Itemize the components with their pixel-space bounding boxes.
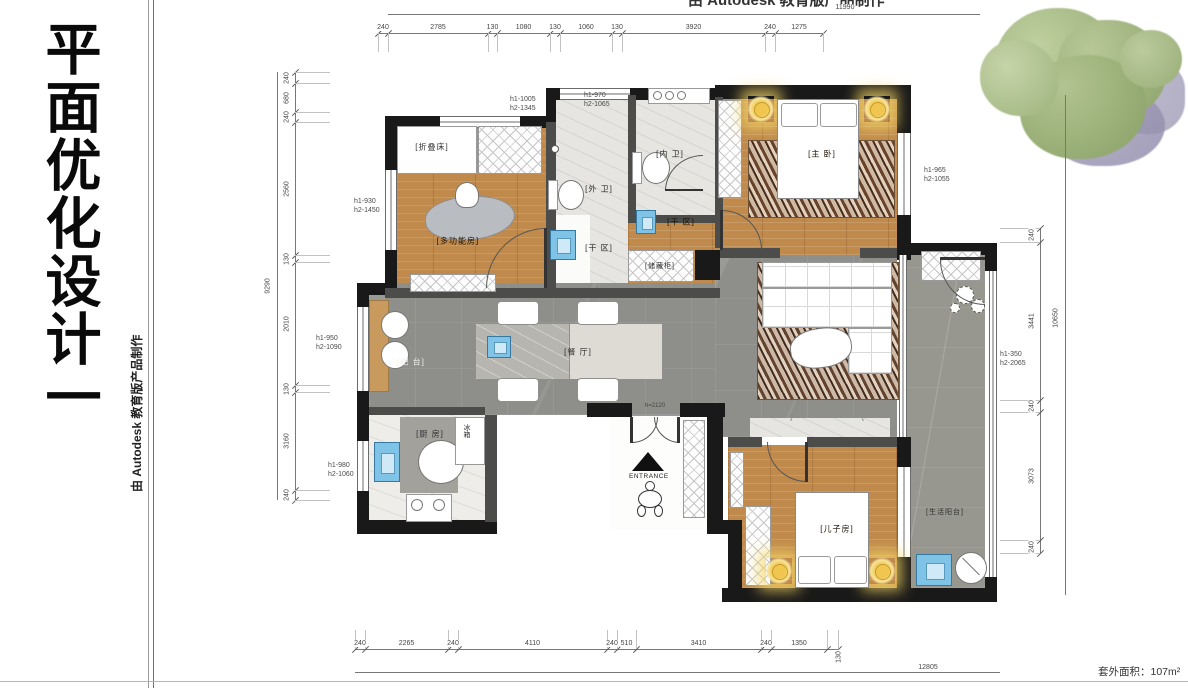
dim-extension	[497, 33, 498, 52]
window-kitchen-left	[357, 441, 369, 491]
dim-label: 130	[548, 24, 562, 31]
island-sink	[487, 336, 511, 358]
dim-chain-line	[1040, 228, 1041, 553]
desk-chair	[455, 182, 479, 208]
dim-extension	[838, 630, 839, 649]
wall	[385, 116, 397, 170]
dim-label: 240	[376, 24, 390, 31]
window-label: h1-1005h2-1345	[510, 96, 536, 114]
dim-extension	[295, 262, 330, 263]
fridge	[455, 417, 485, 465]
window-label: h1-980h2-1060	[328, 462, 354, 480]
dim-label: 2265	[398, 640, 416, 647]
door-leaf	[544, 228, 547, 288]
dim-label: 240	[446, 640, 460, 647]
dim-label: 130	[284, 252, 291, 266]
door-leaf	[805, 442, 808, 482]
dim-extension	[765, 33, 766, 52]
dim-label: 240	[763, 24, 777, 31]
door-leaf	[720, 210, 723, 250]
sliding-door-balcony	[899, 255, 907, 437]
window-bar-left	[357, 307, 369, 391]
kitchen-sink	[374, 442, 400, 482]
dim-overall-bottom-line	[355, 672, 1000, 673]
wall	[707, 520, 742, 534]
dim-extension	[295, 112, 330, 113]
dim-label: 240	[759, 640, 773, 647]
room-label-master: [主 卧]	[808, 149, 836, 160]
dim-label: 680	[284, 91, 291, 105]
dim-extension	[488, 33, 489, 52]
pillow	[834, 556, 867, 584]
dim-label: 3920	[685, 24, 703, 31]
wall	[546, 288, 720, 298]
dim-label: 240	[353, 640, 367, 647]
wall	[897, 85, 911, 133]
dim-overall-left: 9290	[265, 277, 272, 295]
entrance-threshold	[632, 414, 680, 416]
wall	[357, 283, 369, 307]
door-leaf	[940, 257, 985, 260]
frame-line-vertical	[148, 0, 149, 688]
dim-label: 3073	[1029, 467, 1036, 485]
dim-extension	[388, 33, 389, 52]
wall	[897, 437, 911, 467]
pillow	[781, 103, 818, 127]
plant-icon	[950, 303, 960, 313]
dim-extension	[295, 83, 330, 84]
dim-extension	[295, 500, 330, 501]
window-balcony-right	[989, 271, 997, 577]
entrance-label: ENTRANCE	[629, 473, 669, 480]
dim-label: 130	[486, 24, 500, 31]
room-label-outer-bath: [外 卫]	[585, 184, 613, 195]
dim-extension	[295, 72, 330, 73]
room-label-folding-bed: [折叠床]	[415, 142, 448, 153]
dim-label: 240	[605, 640, 619, 647]
window-label: h1-970h2-1065	[584, 92, 610, 110]
cabinet-dining-top	[410, 274, 496, 292]
shower-head-icon	[551, 145, 559, 153]
dim-label: 3410	[690, 640, 708, 647]
room-label-dining: [餐 厅]	[564, 347, 592, 358]
window-kids-right	[897, 467, 911, 557]
washing-machine	[916, 554, 952, 586]
wall	[728, 534, 742, 592]
frame-line-vertical-2	[153, 0, 154, 688]
room-label-balcony: [生活阳台]	[926, 507, 964, 517]
wall	[485, 415, 497, 522]
dim-label: 510	[620, 640, 634, 647]
dim-label: 240	[1029, 540, 1036, 554]
burner	[411, 499, 423, 511]
wall	[985, 243, 997, 271]
dim-overall-left-line	[277, 72, 278, 500]
autodesk-credit-side: 由 Autodesk 教育版产品制作	[128, 247, 145, 492]
dim-label: 1275	[790, 24, 808, 31]
dim-extension	[775, 33, 776, 52]
wall	[357, 391, 369, 441]
door-leaf	[630, 417, 633, 443]
sofa-chaise	[848, 328, 892, 374]
wall	[807, 437, 897, 447]
entrance-arrow-icon	[632, 452, 664, 471]
dim-chain-line	[295, 72, 296, 500]
dim-overall-bottom: 12805	[917, 664, 938, 671]
bedside-lamp-icon	[864, 96, 890, 122]
dim-label: 240	[284, 488, 291, 502]
wall	[680, 403, 725, 417]
dim-extension	[612, 33, 613, 52]
closet-corridor	[730, 452, 744, 508]
wall	[897, 557, 911, 602]
dim-label: 2560	[284, 180, 291, 198]
wardrobe-multiroom	[478, 126, 542, 174]
dim-label: 4110	[524, 640, 541, 647]
tv-console-strip	[750, 418, 890, 437]
dining-chair	[497, 301, 539, 325]
room-label-bar: [吧 台]	[397, 357, 425, 368]
window-label: h1-350h2-2065	[1000, 351, 1026, 369]
window-label: h1-930h2-1450	[354, 198, 380, 216]
shoe-cabinet-entrance	[683, 420, 705, 518]
toilet-bowl	[558, 180, 584, 210]
dim-extension	[295, 255, 330, 256]
dim-extension	[560, 33, 561, 52]
window-multiroom-left	[385, 170, 397, 250]
sofa-seat	[762, 288, 892, 328]
room-label-multifunction: [多功能房]	[437, 236, 479, 247]
window-label: h1-950h2-1090	[316, 335, 342, 353]
wall	[587, 403, 632, 417]
sofa-back	[762, 262, 892, 288]
wall	[369, 407, 485, 415]
vanity-bowl	[677, 91, 686, 100]
dim-chain-line	[355, 649, 838, 650]
person-icon	[654, 505, 663, 517]
wall	[357, 520, 497, 534]
dim-extension	[827, 630, 828, 649]
room-label-dry-area-2: [干 区]	[667, 217, 695, 228]
dim-extension	[636, 630, 637, 649]
pillow	[820, 103, 857, 127]
dim-label: 240	[1029, 228, 1036, 242]
dim-label: 2010	[284, 315, 291, 333]
dim-label: 130	[835, 650, 842, 664]
frame-line-bottom	[0, 681, 1188, 682]
room-label-dry-area-1: [干 区]	[585, 243, 613, 254]
door-height-label: h=2120	[644, 403, 666, 409]
wall	[722, 588, 997, 602]
dim-extension	[622, 33, 623, 52]
pillow	[798, 556, 831, 584]
page-title: 平面优化设计一	[34, 20, 104, 426]
burner	[433, 499, 445, 511]
wall	[860, 248, 897, 258]
dim-label: 3160	[284, 432, 291, 450]
toilet-tank	[632, 152, 642, 184]
person-icon	[637, 505, 646, 517]
bar-stool	[381, 311, 409, 339]
dim-overall-right-line	[1065, 95, 1066, 595]
dim-overall-right: 10650	[1053, 307, 1060, 328]
dim-label: 1350	[790, 640, 808, 647]
dim-chain-line	[378, 33, 823, 34]
room-label-kitchen: [厨 房]	[416, 429, 444, 440]
floorplan-sheet: 平面优化设计一 由 Autodesk 教育版产品制作 由 Autodesk 教育…	[0, 0, 1188, 688]
dim-extension	[295, 490, 330, 491]
dim-extension	[823, 33, 824, 52]
dim-extension	[295, 392, 330, 393]
dim-extension	[295, 385, 330, 386]
basin-dry-area-1	[550, 230, 576, 260]
bedside-lamp-icon	[766, 558, 792, 584]
dim-extension	[1000, 242, 1040, 243]
dim-overall-top-line	[388, 14, 980, 15]
bedside-lamp-icon	[748, 96, 774, 122]
room-label-inner-bath: [内 卫]	[656, 149, 684, 160]
dim-extension	[295, 122, 330, 123]
basin-dry-area-2	[636, 210, 656, 234]
dim-label: 130	[610, 24, 624, 31]
vanity-bowl	[653, 91, 662, 100]
dim-label: 3441	[1029, 312, 1036, 330]
dim-overall-top: 11990	[835, 4, 856, 11]
dining-chair	[577, 378, 619, 402]
room-label-kids: [儿子房]	[820, 524, 853, 535]
dim-label: 1060	[577, 24, 595, 31]
dim-extension	[378, 33, 379, 52]
window-master-right	[897, 133, 911, 215]
dim-extension	[550, 33, 551, 52]
dining-chair	[497, 378, 539, 402]
dim-label: 130	[284, 382, 291, 396]
dim-label: 1080	[515, 24, 533, 31]
wall	[728, 437, 762, 447]
door-leaf	[665, 189, 703, 191]
wall	[695, 250, 720, 280]
wardrobe-master	[718, 100, 742, 198]
vanity-bowl	[665, 91, 674, 100]
room-label-storage: [储藏柜]	[645, 261, 675, 271]
door-leaf	[677, 417, 680, 443]
fridge-label: 冰箱	[463, 424, 470, 438]
wall	[357, 491, 369, 534]
bedside-lamp-icon	[869, 558, 895, 584]
toilet-tank	[548, 180, 558, 210]
area-note: 套外面积：107m²	[1098, 664, 1180, 679]
dim-label: 240	[284, 110, 291, 124]
window-label: h1-965h2-1055	[924, 167, 950, 185]
dining-chair	[577, 301, 619, 325]
wall	[707, 417, 723, 520]
dim-label: 240	[284, 71, 291, 85]
dim-label: 240	[1029, 399, 1036, 413]
dim-label: 2785	[429, 24, 447, 31]
